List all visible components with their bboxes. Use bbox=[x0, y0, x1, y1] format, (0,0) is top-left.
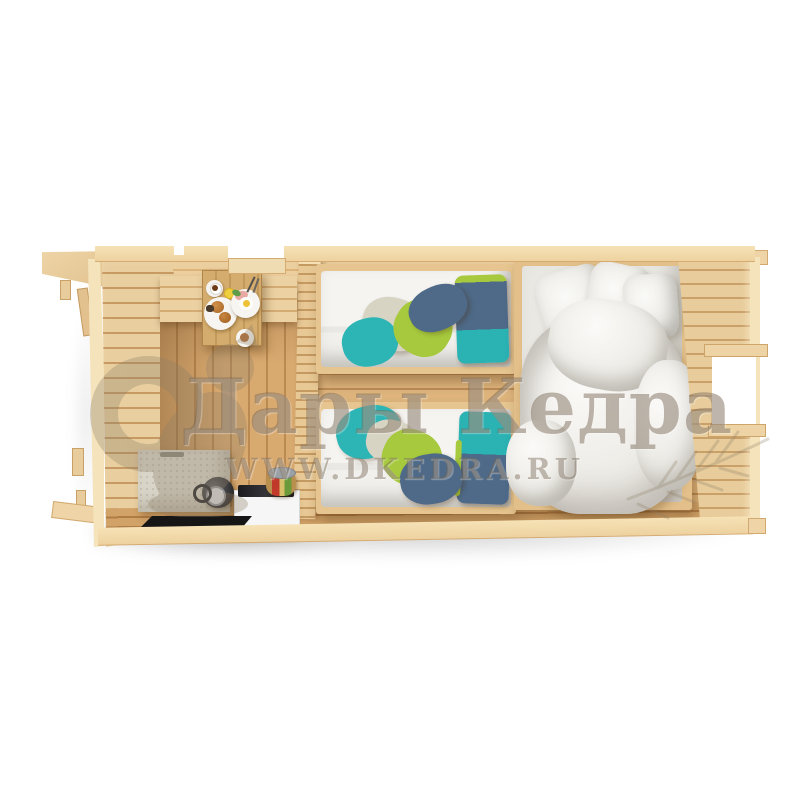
building-top-edge bbox=[95, 246, 755, 262]
entrance-step-notch bbox=[174, 245, 184, 255]
cedar-branch-watermark bbox=[618, 404, 778, 534]
render-canvas: Дары Кедра WWW.DKEDRA.RU bbox=[0, 0, 800, 800]
window-sill-top bbox=[704, 344, 768, 357]
entrance-door-slab bbox=[228, 258, 286, 274]
website-watermark: WWW.DKEDRA.RU bbox=[225, 452, 555, 486]
pillow-1 bbox=[454, 274, 509, 364]
